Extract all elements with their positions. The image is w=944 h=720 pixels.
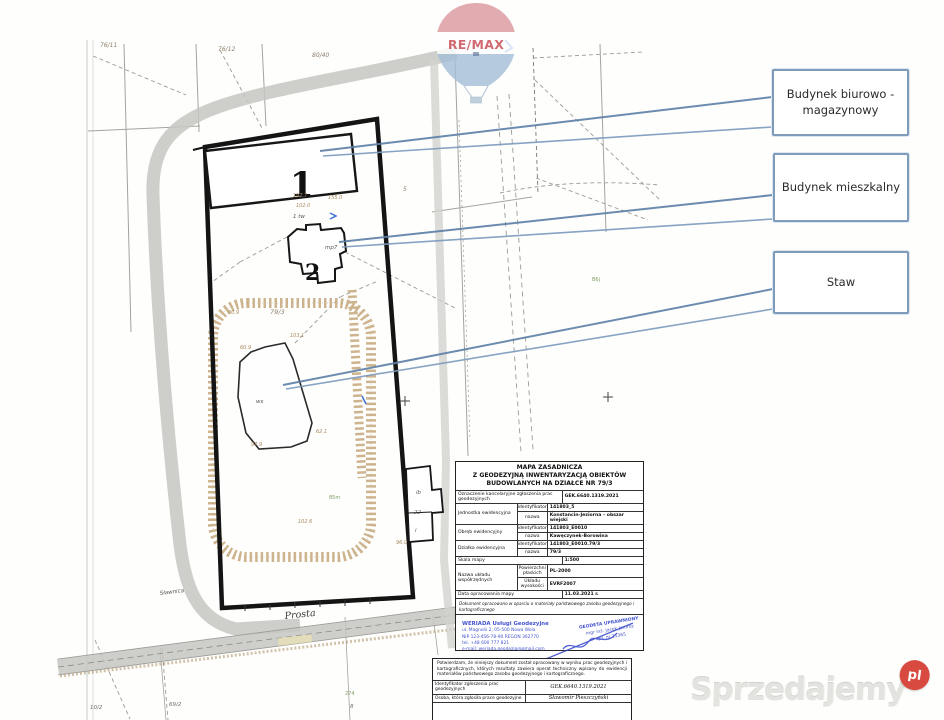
callout-office-warehouse: Budynek biurowo - magazynowy [772,69,909,136]
certification-table: Potwierdzam, że niniejszy dokument zosta… [432,658,632,720]
firm-phone: tel. +48 600 777 821 [462,641,509,646]
cell-label: Skala mapy [456,557,563,564]
cell-value: 79/3 [548,549,643,556]
certification-paragraph: Potwierdzam, że niniejszy dokument zosta… [433,659,631,681]
paper-edge-lines [87,40,93,720]
map-label: 76/11 [100,42,117,49]
pond-label: ws [256,399,263,405]
elevation-label: 62.1 [316,429,327,435]
title-line: BUDOWLANYCH NA DZIAŁCE NR 79/3 [457,480,642,488]
row-dzialka: Działka ewidencyjna identyfikator 141803… [456,541,643,557]
cell-value: Sławomir Pieszczyński [526,695,631,702]
cell-label: Oznaczenie kancelaryjne zgłoszenia prac … [456,491,563,503]
leader-line [320,97,772,151]
cell-sublabel: identyfikator [518,525,548,532]
elevation-label: 96.0 [396,540,407,546]
title-block-note: Dokument opracowano w oparciu o materiał… [456,599,643,614]
cell-label: Jednostka ewidencyjna [456,504,518,524]
building-2-code: mp7 [325,245,338,251]
leader-line [286,309,773,389]
row-id: Identyfikator zgłoszenia prac geodezyjny… [433,681,631,695]
map-label: 80/40 [312,52,329,59]
leader-line [283,289,773,385]
elevation-label: 102.6 [298,519,312,525]
map-label: 274 [345,691,355,697]
pond-staw: ws [238,343,312,449]
parcel-number: 79/3 [270,308,285,316]
row-data: Data opracowania mapy 11.03.2021 r. [456,591,643,599]
cell-value: Konstancin-Jeziorna – obszar wiejski [548,512,643,524]
map-title-block: MAPA ZASADNICZA Z GEODEZYJNĄ INWENTARYZA… [455,461,644,651]
blue-map-marks [330,40,512,404]
remax-wordmark: RE/MAX [448,37,504,52]
cell-sublabel: nazwa [518,533,548,540]
portal-wordmark: Sprzedajemy [689,672,905,708]
leader-line [323,127,772,156]
callout-label: Budynek mieszkalny [782,180,900,196]
cell-sublabel: identyfikator [518,541,548,548]
callout-residential: Budynek mieszkalny [773,153,909,222]
cell-value: Kawęczynek-Borowina [548,533,643,540]
map-label: 76/12 [218,46,235,53]
street-name: Prosta [283,608,316,622]
map-label: 85m [329,495,340,501]
utility-symbols [400,392,613,406]
cell-sublabel: Układu wysokości [518,578,548,590]
row-skala: Skala mapy 1:500 [456,557,643,565]
elevation-label: 155.0 [328,195,342,201]
elevation-label: 103.1 [290,333,304,339]
map-label: ib [416,490,422,496]
cell-label: Działka ewidencyjna [456,541,518,556]
remax-balloon-watermark: RE/MAX [432,2,520,103]
stamps-area: WERIADA Usługi Geodezyjne ul. Magnolii 2… [456,615,643,653]
title-block-header: MAPA ZASADNICZA Z GEODEZYJNĄ INWENTARYZA… [456,462,643,491]
row-author: Osoba, która zgłosiła prace geodezyjne S… [433,695,631,703]
row-obreb: Obręb ewidencyjny identyfikator 141803_E… [456,525,643,541]
building-2-residential: 2 mp7 1 tw [288,214,346,286]
firm-nip: NIP 123-456-78-90 REGON 362770 [462,635,539,640]
callout-label: Staw [827,275,855,291]
cell-value: PL-2000 [548,565,643,577]
row-jednostka: Jednostka ewidencyjna identyfikator 1418… [456,504,643,525]
cell-value: 11.03.2021 r. [563,591,643,598]
cell-sublabel: nazwa [518,549,548,556]
elevation-label: 80.9 [228,310,239,316]
screenshot-root: 1 2 mp7 1 tw ws ib 22 i [0,0,944,720]
map-label: 10/2 [90,705,103,711]
title-line: Z GEODEZYJNĄ INWENTARYZACJĄ OBIEKTÓW [457,472,642,480]
cell-value: 141803_5 [548,504,643,511]
cell-value: GEK.6640.1319.2021 [526,681,631,694]
elevation-label: 102.0 [296,203,310,209]
cell-value: GEK.6640.1319.2021 [563,491,643,503]
map-label: 1 tw [293,214,305,220]
building-2-number: 2 [305,260,320,286]
map-label: 22 [414,510,421,516]
elevation-label: 197.7 [293,193,308,199]
map-label: 5 [403,186,407,193]
cell-label: Data opracowania mapy [456,591,563,598]
elevation-label: 97.9 [251,442,262,448]
elevation-label: 60.9 [240,345,251,351]
callout-pond: Staw [773,251,909,314]
neighbour-building: ib 22 i [406,466,443,542]
leader-line [342,219,773,247]
row-kancelaria: Oznaczenie kancelaryjne zgłoszenia prac … [456,491,643,504]
street-name-2: Sławnica [160,588,186,597]
row-uklad: Nazwa układu współrzędnych Powierzchni p… [456,565,643,591]
remax-emblem [473,52,479,56]
cell-sublabel: nazwa [518,512,548,524]
cell-label: Obręb ewidencyjny [456,525,518,540]
firm-address: ul. Magnolii 2, 05-500 Nowa Wola [462,628,535,633]
cell-value: 141803_E0010 [548,525,643,532]
cell-value: EVRF2007 [548,578,643,590]
cell-value: 1:500 [563,557,643,564]
leader-line [339,195,773,242]
map-label: 8 [350,704,354,710]
cell-sublabel: identyfikator [518,504,548,511]
map-label: 69/2 [169,702,182,708]
balloon-basket [471,97,482,103]
title-line: MAPA ZASADNICZA [457,464,642,472]
portal-watermark: Sprzedajemy pl [690,672,928,708]
map-label: B6j [592,277,600,283]
cell-value: 141803_E0010.79/3 [548,541,643,548]
cell-sublabel: Powierzchni płaskich [518,565,548,577]
cell-label: Nazwa układu współrzędnych [456,565,518,590]
cell-label: Osoba, która zgłosiła prace geodezyjne [433,695,526,702]
building-1-number: 1 [290,165,314,205]
cell-label: Identyfikator zgłoszenia prac geodezyjny… [433,681,526,694]
callout-label: Budynek biurowo - magazynowy [778,87,903,118]
